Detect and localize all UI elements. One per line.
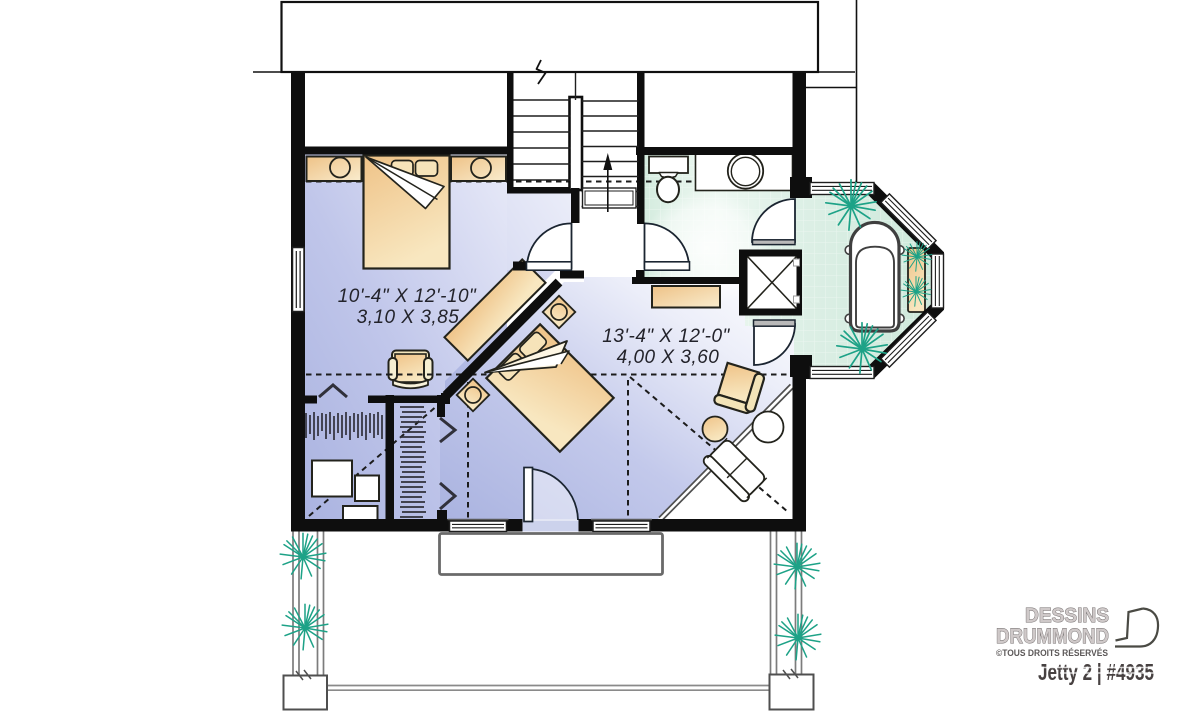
svg-text:DESSINS: DESSINS <box>1025 605 1109 627</box>
svg-text:DRUMMOND: DRUMMOND <box>996 625 1109 648</box>
svg-text:4,00 X 3,60: 4,00 X 3,60 <box>617 347 720 368</box>
svg-text:10'-4" X 12'-10": 10'-4" X 12'-10" <box>338 286 477 307</box>
svg-text:3,10 X 3,85: 3,10 X 3,85 <box>357 307 460 328</box>
svg-text:13'-4" X 12'-0": 13'-4" X 12'-0" <box>602 326 730 347</box>
svg-text:Jetty 2 | #4935: Jetty 2 | #4935 <box>1038 659 1154 685</box>
svg-text:©TOUS DROITS RÉSERVÉS: ©TOUS DROITS RÉSERVÉS <box>996 648 1108 658</box>
